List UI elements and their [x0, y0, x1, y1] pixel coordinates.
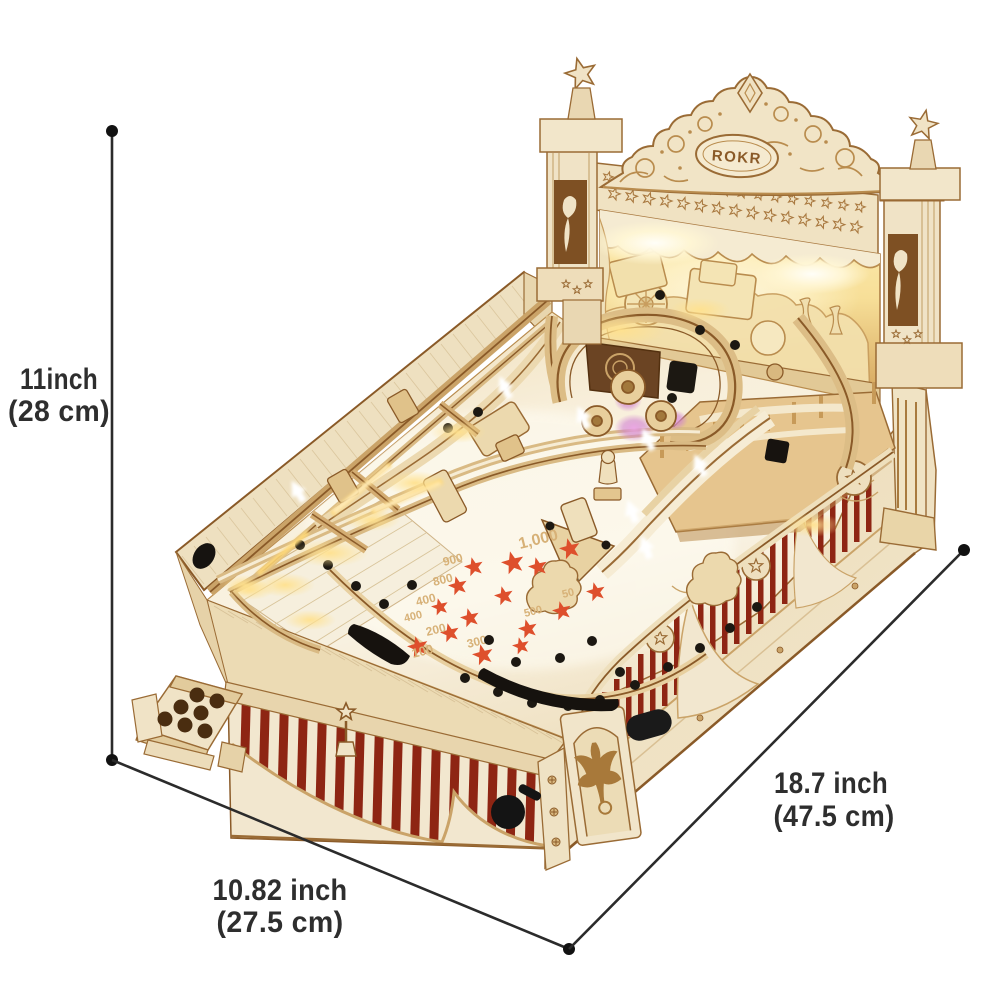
- svg-text:ROKR: ROKR: [711, 147, 762, 167]
- svg-text:18.7 inch: 18.7 inch: [774, 767, 888, 800]
- svg-text:(47.5 cm): (47.5 cm): [774, 800, 895, 833]
- svg-text:10.82 inch: 10.82 inch: [213, 874, 348, 907]
- svg-text:11inch: 11inch: [20, 363, 98, 396]
- svg-text:(28 cm): (28 cm): [8, 395, 110, 428]
- svg-text:(27.5 cm): (27.5 cm): [217, 906, 344, 939]
